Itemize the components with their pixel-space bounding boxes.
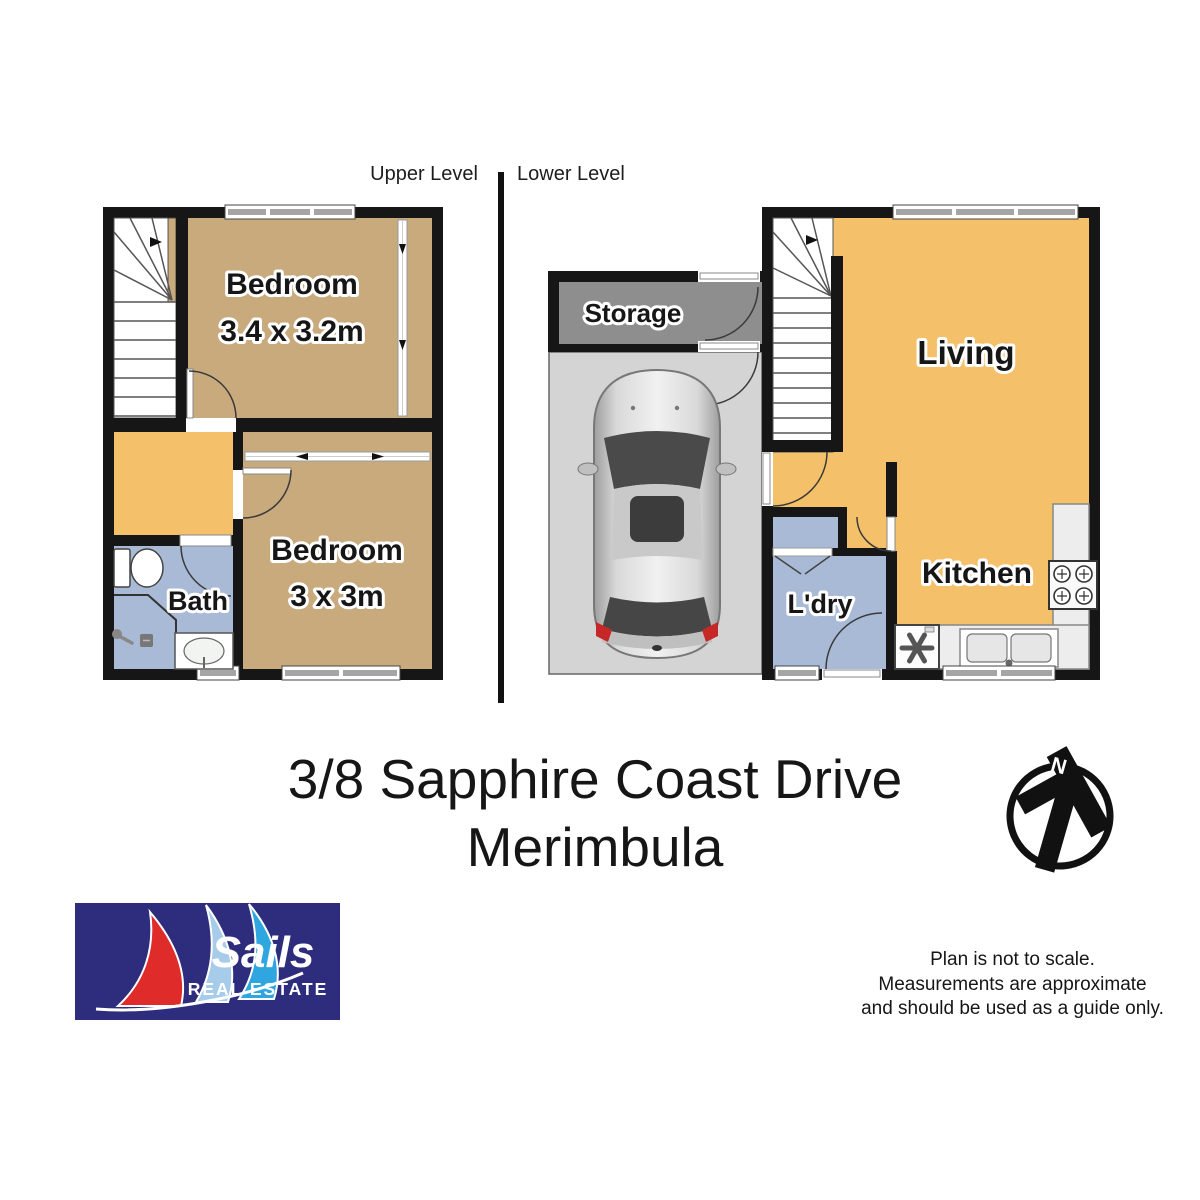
living-window [893, 205, 1078, 219]
wall-stairs-bedroom1 [176, 218, 188, 418]
level-divider [498, 172, 504, 703]
upper-stairs [114, 218, 176, 418]
bedroom2-label: Bedroom [271, 534, 403, 567]
wall-hall-bottom [773, 507, 838, 517]
kitchen-label: Kitchen [922, 557, 1032, 590]
north-arrow-icon: N [997, 736, 1130, 884]
disclaimer-line: Plan is not to scale. [820, 948, 1200, 973]
wall-bedroom2-left [233, 418, 243, 669]
lower-floor-plan: Storage Living Kitchen L'dry [548, 205, 1100, 680]
wall-cupboard-right [838, 507, 847, 553]
kitchen-window [943, 666, 1055, 680]
dishwasher-icon [895, 625, 939, 669]
upper-landing [114, 432, 233, 535]
lower-stairs [773, 218, 833, 452]
laundry-window [775, 666, 819, 680]
kitchen-sink-icon [960, 629, 1058, 667]
bedroom2-window [282, 666, 400, 680]
bedroom1-robe-track [398, 220, 407, 416]
property-title: 3/8 Sapphire Coast Drive Merimbula [245, 745, 945, 881]
floorplan-page: Upper Level Lower Level [0, 0, 1200, 1200]
upper-floor-plan: Bedroom 3.4 x 3.2m Bedroom 3 x 3m Bath [103, 205, 443, 680]
toilet-icon [114, 549, 163, 587]
bedroom2-dims: 3 x 3m [290, 580, 383, 613]
logo-brand-text: Sails [212, 928, 315, 977]
storage-label: Storage [585, 298, 682, 328]
bedroom2-robe-track [245, 452, 430, 461]
disclaimer-line: and should be used as a guide only. [820, 997, 1200, 1022]
vanity-sink-icon [175, 633, 233, 669]
bedroom1-dims: 3.4 x 3.2m [220, 315, 363, 348]
linen-cupboard [773, 517, 838, 548]
bath-label: Bath [168, 586, 228, 616]
wall-hall-kitchen [886, 462, 897, 517]
bedroom1-label: Bedroom [226, 268, 358, 301]
property-suburb: Merimbula [245, 813, 945, 881]
wall-stairs-bottom [762, 440, 843, 452]
car-icon [578, 370, 736, 658]
wall-stairs-right [831, 256, 843, 452]
brand-logo: Sails REAL ESTATE [75, 903, 340, 1020]
laundry-label: L'dry [788, 589, 853, 619]
bedroom1-window [225, 205, 355, 219]
wall-bedroom1-bottom [103, 418, 443, 432]
disclaimer-line: Measurements are approximate [820, 973, 1200, 998]
stove-icon [1049, 561, 1097, 609]
disclaimer: Plan is not to scale. Measurements are a… [820, 948, 1200, 1022]
property-address: 3/8 Sapphire Coast Drive [245, 745, 945, 813]
living-label: Living [917, 334, 1014, 371]
logo-tagline-text: REAL ESTATE [188, 979, 329, 999]
